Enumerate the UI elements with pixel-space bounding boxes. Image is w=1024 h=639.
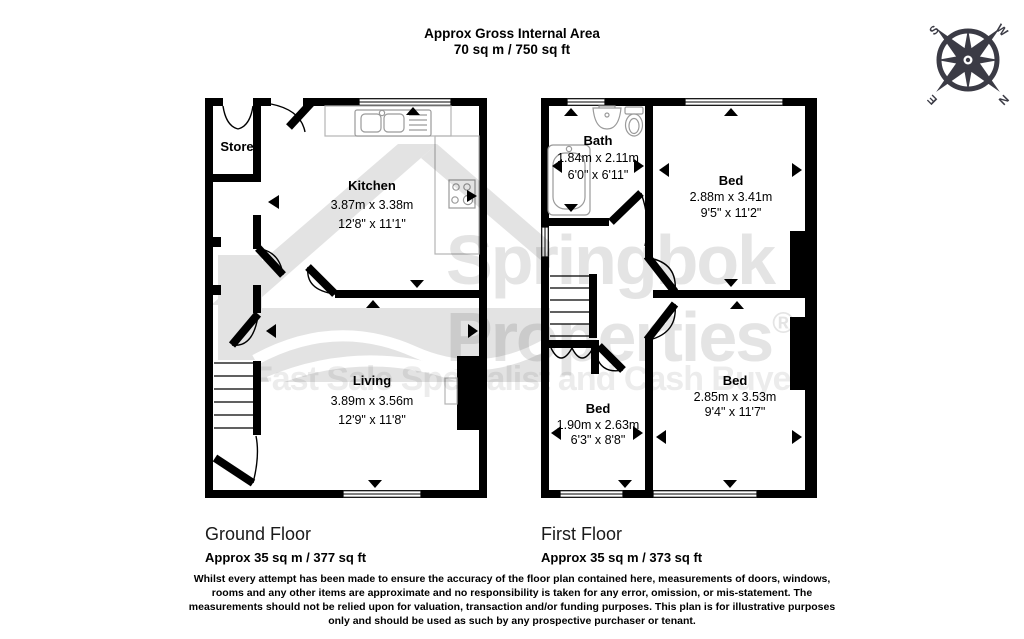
room-label-bath: Bath <box>584 133 613 148</box>
compass-letter-w: W <box>993 21 1011 39</box>
title-block: Approx Gross Internal Area 70 sq m / 750… <box>0 26 1024 58</box>
stairs-ground <box>214 363 253 428</box>
first-floor-area: Approx 35 sq m / 373 sq ft <box>541 550 702 565</box>
chimney-breast <box>790 231 805 290</box>
ground-floor-caption: Ground Floor Approx 35 sq m / 377 sq ft <box>205 524 366 565</box>
compass-letter-n: N <box>996 92 1012 108</box>
room-dims-bath-ft: 6'0" x 6'11" <box>568 168 629 182</box>
compass-letter-s: S <box>926 22 942 38</box>
chimney-breast <box>790 317 805 390</box>
ground-floor-area: Approx 35 sq m / 377 sq ft <box>205 550 366 565</box>
sink-icon <box>355 110 431 136</box>
first-floor-label: First Floor <box>541 524 702 545</box>
basin-icon <box>593 106 621 129</box>
toilet-icon <box>625 107 643 136</box>
ground-floor-plan: Store Kitchen 3.87m x 3.38m 12'8" x 11'1… <box>205 98 487 498</box>
room-label-kitchen: Kitchen <box>348 178 396 193</box>
room-dims-bed-3-m: 2.85m x 3.53m <box>694 390 777 404</box>
room-dims-living-m: 3.89m x 3.56m <box>331 394 414 408</box>
compass-letter-e: E <box>924 92 940 108</box>
room-dims-bed-2-m: 1.90m x 2.63m <box>557 418 640 432</box>
room-dims-bed-1-ft: 9'5" x 11'2" <box>701 206 762 220</box>
room-dims-bath-m: 1.84m x 2.11m <box>557 151 639 165</box>
room-label-store: Store <box>220 139 253 154</box>
ground-floor-door-arcs <box>223 104 335 483</box>
ground-floor-diagonal-walls <box>215 101 335 483</box>
chimney-breast <box>457 356 479 430</box>
compass-rose: S W E N <box>918 10 1018 110</box>
page-subtitle: 70 sq m / 750 sq ft <box>0 42 1024 58</box>
page-title: Approx Gross Internal Area <box>0 26 1024 42</box>
room-dims-kitchen-m: 3.87m x 3.38m <box>331 198 414 212</box>
room-label-bed-3: Bed <box>723 373 748 388</box>
first-floor-diagonal-walls <box>599 193 675 370</box>
stairs-first <box>550 276 589 336</box>
disclaimer-text: Whilst every attempt has been made to en… <box>182 572 842 628</box>
room-label-bed-2: Bed <box>586 401 611 416</box>
room-dims-bed-2-ft: 6'3" x 8'8" <box>571 433 626 447</box>
floorplan-page: Approx Gross Internal Area 70 sq m / 750… <box>0 0 1024 639</box>
first-floor-plan: Bath 1.84m x 2.11m 6'0" x 6'11" Bed 2.88… <box>541 98 817 498</box>
room-label-living: Living <box>353 373 391 388</box>
room-dims-bed-3-ft: 9'4" x 11'7" <box>705 405 766 419</box>
ground-floor-label: Ground Floor <box>205 524 366 545</box>
room-label-bed-1: Bed <box>719 173 744 188</box>
room-dims-bed-1-m: 2.88m x 3.41m <box>690 190 773 204</box>
first-floor-caption: First Floor Approx 35 sq m / 373 sq ft <box>541 524 702 565</box>
room-dims-living-ft: 12'9" x 11'8" <box>338 413 406 427</box>
ground-floor-walls <box>205 98 487 498</box>
kitchen-counter <box>325 106 479 404</box>
room-dims-kitchen-ft: 12'8" x 11'1" <box>338 217 406 231</box>
